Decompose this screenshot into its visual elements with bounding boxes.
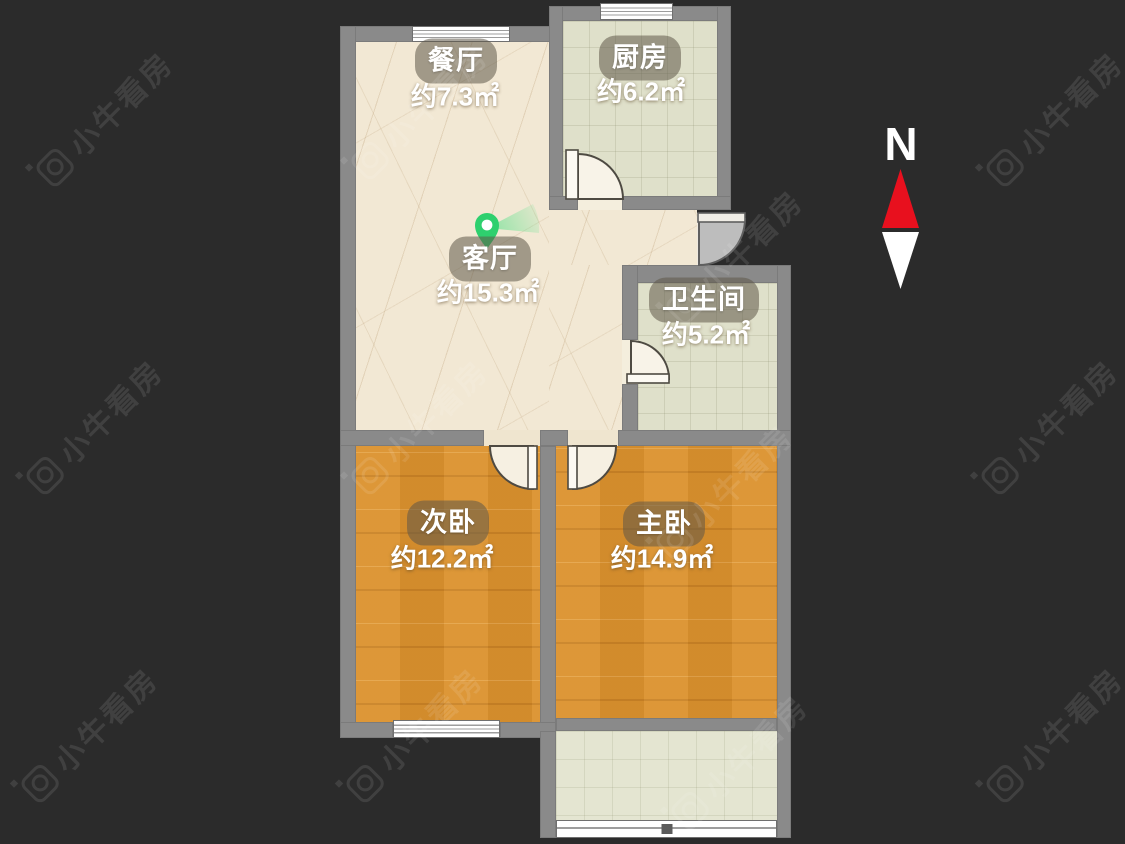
wall-balcony-left xyxy=(540,731,556,838)
watermark: 小牛看房 xyxy=(28,40,181,193)
second-bedroom-doorway xyxy=(484,430,540,446)
floor-balcony xyxy=(556,731,777,822)
bathroom-doorway xyxy=(622,340,638,384)
wall-kitchen-right xyxy=(717,6,731,210)
compass-north-icon xyxy=(878,166,923,292)
floor-plan: 餐厅 约7.3㎡ 厨房 约6.2㎡ 客厅 约15.3㎡ 卫生间 约5.2㎡ 次卧… xyxy=(0,0,1125,844)
floor-hallway-lower xyxy=(549,265,622,430)
area-label-kitchen: 约6.2㎡ xyxy=(597,72,685,109)
watermark-logo-icon xyxy=(343,761,387,805)
wall-between-bedrooms xyxy=(540,446,556,731)
watermark-logo-icon xyxy=(983,761,1027,805)
wall-left-outer xyxy=(340,26,356,738)
watermark-logo-icon xyxy=(978,453,1022,497)
balcony-window-handle xyxy=(661,824,672,834)
wall-kitchen-bottom-left xyxy=(549,196,578,210)
area-label-master-bedroom: 约14.9㎡ xyxy=(611,539,714,576)
wall-bathroom-left-upper xyxy=(622,265,638,340)
area-label-bathroom: 约5.2㎡ xyxy=(662,315,750,352)
wall-right-outer xyxy=(777,265,791,838)
entry-doorway xyxy=(697,213,709,265)
watermark-logo-icon xyxy=(983,145,1027,189)
wall-kitchen-bottom-right xyxy=(622,196,731,210)
wall-second-bedroom-bottom-left xyxy=(340,722,393,738)
wall-living-bottom-left xyxy=(340,430,484,446)
watermark-logo-icon xyxy=(18,761,62,805)
kitchen-window xyxy=(600,3,673,20)
floor-second-bedroom xyxy=(356,446,540,722)
area-label-second-bedroom: 约12.2㎡ xyxy=(391,539,494,576)
compass-north-label: N xyxy=(884,117,917,171)
master-bedroom-doorway xyxy=(568,430,618,446)
kitchen-doorway xyxy=(578,196,622,210)
wall-kitchen-left xyxy=(549,6,563,210)
watermark-logo-icon xyxy=(33,145,77,189)
floor-hallway-upper xyxy=(549,210,697,265)
wall-living-bottom-right xyxy=(618,430,791,446)
watermark: 小牛看房 xyxy=(18,348,171,501)
watermark: 小牛看房 xyxy=(973,348,1125,501)
balcony-window xyxy=(556,820,777,838)
area-label-dining: 约7.3㎡ xyxy=(411,77,499,114)
watermark: 小牛看房 xyxy=(13,656,166,809)
floor-master-bedroom xyxy=(556,446,777,718)
wall-living-bottom-middle xyxy=(540,430,568,446)
watermark-logo-icon xyxy=(23,453,67,497)
wall-master-balcony-divider xyxy=(556,718,777,731)
watermark: 小牛看房 xyxy=(978,40,1125,193)
area-label-living: 约15.3㎡ xyxy=(437,273,540,310)
watermark: 小牛看房 xyxy=(978,656,1125,809)
second-bedroom-window xyxy=(393,720,500,738)
